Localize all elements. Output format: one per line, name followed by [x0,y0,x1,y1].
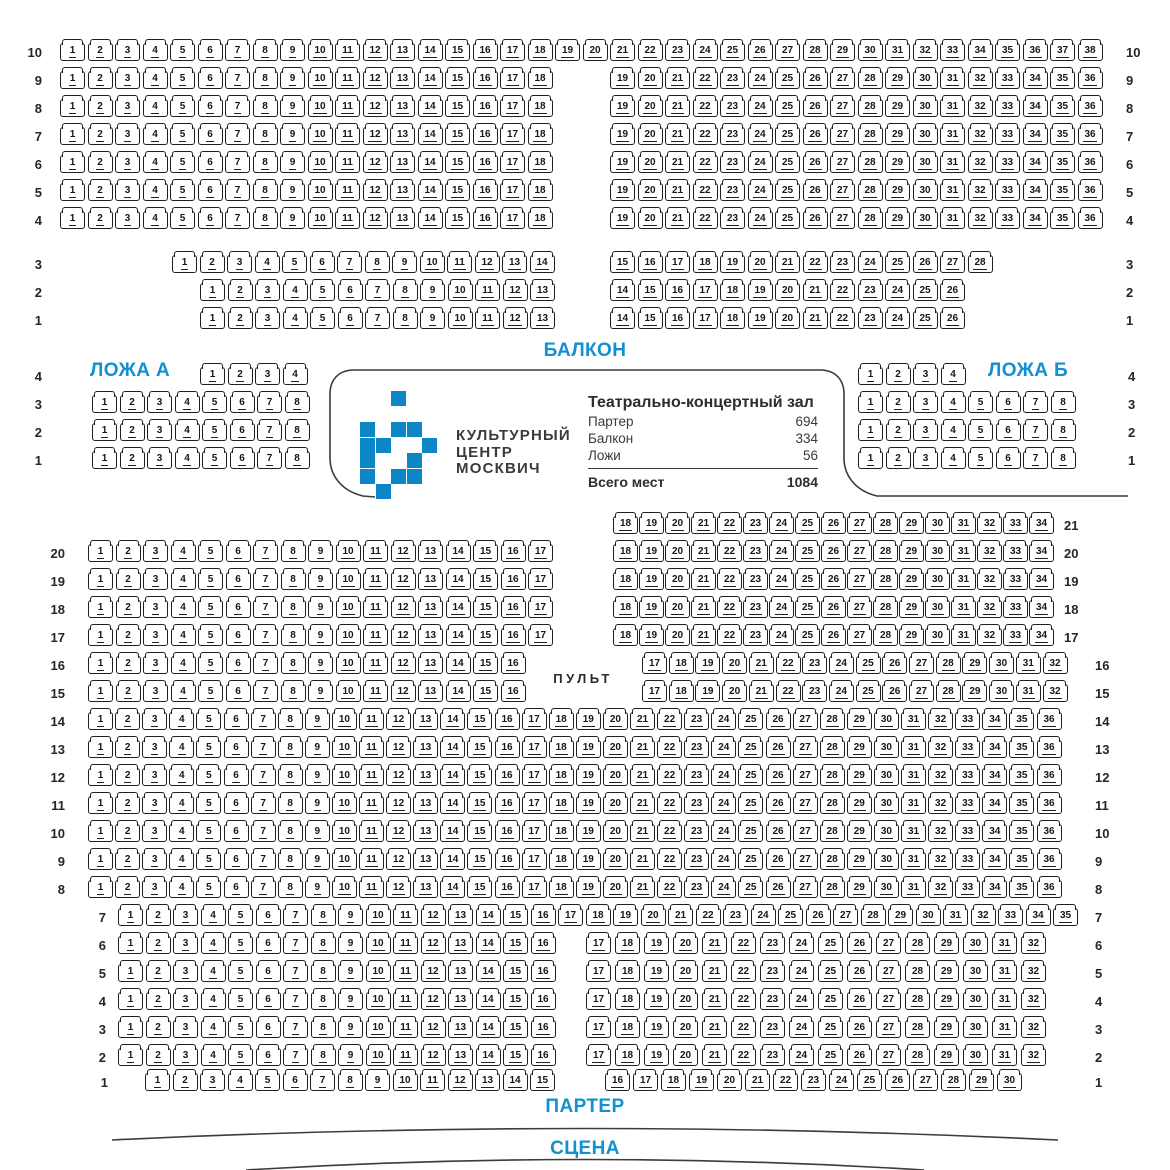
seat[interactable]: 35 [1009,824,1034,842]
seat[interactable]: 19 [639,572,664,590]
seat[interactable]: 7 [225,127,250,145]
seat[interactable]: 17 [633,1073,658,1091]
seat[interactable]: 13 [448,936,473,954]
seat[interactable]: 28 [858,211,883,229]
seat[interactable]: 7 [253,600,278,618]
seat[interactable]: 32 [977,516,1002,534]
seat[interactable]: 4 [143,71,168,89]
seat[interactable]: 6 [198,183,223,201]
seat[interactable]: 20 [603,796,628,814]
seat[interactable]: 13 [390,71,415,89]
seat[interactable]: 8 [281,656,306,674]
seat[interactable]: 33 [955,824,980,842]
seat[interactable]: 6 [256,1020,281,1038]
seat[interactable]: 1 [88,656,113,674]
seat[interactable]: 7 [253,656,278,674]
seat[interactable]: 34 [982,880,1007,898]
seat[interactable]: 8 [281,628,306,646]
seat[interactable]: 24 [769,544,794,562]
seat[interactable]: 2 [228,283,253,301]
seat[interactable]: 9 [392,255,417,273]
seat[interactable]: 1 [172,255,197,273]
seat[interactable]: 25 [856,684,881,702]
seat[interactable]: 9 [305,852,330,870]
seat[interactable]: 9 [280,127,305,145]
seat[interactable]: 13 [390,43,415,61]
seat[interactable]: 19 [576,740,601,758]
seat[interactable]: 27 [847,544,872,562]
seat[interactable]: 22 [830,311,855,329]
seat[interactable]: 26 [803,211,828,229]
seat[interactable]: 23 [801,1073,826,1091]
seat[interactable]: 21 [665,183,690,201]
seat[interactable]: 1 [858,423,883,441]
seat[interactable]: 20 [638,183,663,201]
seat[interactable]: 18 [693,255,718,273]
seat[interactable]: 28 [873,544,898,562]
seat[interactable]: 23 [720,127,745,145]
seat[interactable]: 7 [253,544,278,562]
seat[interactable]: 7 [251,796,276,814]
seat[interactable]: 3 [255,311,280,329]
seat[interactable]: 14 [440,712,465,730]
seat[interactable]: 3 [142,796,167,814]
seat[interactable]: 7 [251,852,276,870]
seat[interactable]: 17 [500,71,525,89]
seat[interactable]: 7 [310,1073,335,1091]
seat[interactable]: 2 [228,311,253,329]
seat[interactable]: 26 [748,43,773,61]
seat[interactable]: 11 [363,572,388,590]
seat[interactable]: 26 [847,992,872,1010]
seat[interactable]: 9 [280,155,305,173]
seat[interactable]: 14 [476,908,501,926]
seat[interactable]: 7 [1023,395,1048,413]
seat[interactable]: 19 [689,1073,714,1091]
seat[interactable]: 19 [576,712,601,730]
seat[interactable]: 12 [363,99,388,117]
seat[interactable]: 32 [968,211,993,229]
seat[interactable]: 11 [335,183,360,201]
seat[interactable]: 27 [876,992,901,1010]
seat[interactable]: 20 [638,127,663,145]
seat[interactable]: 21 [702,936,727,954]
seat[interactable]: 27 [793,768,818,786]
seat[interactable]: 36 [1078,99,1103,117]
seat[interactable]: 18 [613,544,638,562]
seat[interactable]: 24 [829,1073,854,1091]
seat[interactable]: 28 [820,768,845,786]
seat[interactable]: 12 [363,155,388,173]
seat[interactable]: 1 [118,1048,143,1066]
seat[interactable]: 23 [743,600,768,618]
seat[interactable]: 2 [146,936,171,954]
seat[interactable]: 5 [196,880,221,898]
seat[interactable]: 5 [202,423,227,441]
seat[interactable]: 31 [901,768,926,786]
seat[interactable]: 26 [821,600,846,618]
seat[interactable]: 17 [586,936,611,954]
seat[interactable]: 27 [847,628,872,646]
seat[interactable]: 3 [147,395,172,413]
seat[interactable]: 8 [311,992,336,1010]
seat[interactable]: 12 [386,740,411,758]
seat[interactable]: 25 [775,99,800,117]
seat[interactable]: 16 [501,684,526,702]
seat[interactable]: 1 [118,964,143,982]
seat[interactable]: 17 [500,183,525,201]
seat[interactable]: 21 [665,71,690,89]
seat[interactable]: 8 [281,684,306,702]
seat[interactable]: 4 [143,155,168,173]
seat[interactable]: 22 [657,880,682,898]
seat[interactable]: 22 [696,908,721,926]
seat[interactable]: 11 [363,600,388,618]
seat[interactable]: 7 [1023,423,1048,441]
seat[interactable]: 32 [968,155,993,173]
seat[interactable]: 6 [198,211,223,229]
seat[interactable]: 15 [473,656,498,674]
seat[interactable]: 7 [283,992,308,1010]
seat[interactable]: 11 [335,211,360,229]
seat[interactable]: 13 [390,211,415,229]
seat[interactable]: 8 [285,451,310,469]
seat[interactable]: 31 [940,155,965,173]
seat[interactable]: 23 [684,852,709,870]
seat[interactable]: 26 [847,1020,872,1038]
seat[interactable]: 18 [528,127,553,145]
seat[interactable]: 1 [60,99,85,117]
seat[interactable]: 6 [338,311,363,329]
seat[interactable]: 25 [738,712,763,730]
seat[interactable]: 32 [1021,1048,1046,1066]
seat[interactable]: 4 [143,127,168,145]
seat[interactable]: 16 [473,155,498,173]
seat[interactable]: 28 [858,183,883,201]
seat[interactable]: 24 [748,99,773,117]
seat[interactable]: 23 [760,1020,785,1038]
seat[interactable]: 18 [613,628,638,646]
seat[interactable]: 23 [684,880,709,898]
seat[interactable]: 30 [874,796,899,814]
seat[interactable]: 22 [693,183,718,201]
seat[interactable]: 4 [169,712,194,730]
seat[interactable]: 7 [251,880,276,898]
seat[interactable]: 29 [830,43,855,61]
seat[interactable]: 27 [830,183,855,201]
seat[interactable]: 4 [169,796,194,814]
seat[interactable]: 9 [308,628,333,646]
seat[interactable]: 19 [610,71,635,89]
seat[interactable]: 24 [711,768,736,786]
seat[interactable]: 23 [720,183,745,201]
seat[interactable]: 12 [448,1073,473,1091]
seat[interactable]: 17 [500,155,525,173]
seat[interactable]: 25 [775,155,800,173]
seat[interactable]: 19 [555,43,580,61]
seat[interactable]: 1 [60,155,85,173]
seat[interactable]: 7 [283,1048,308,1066]
seat[interactable]: 34 [982,740,1007,758]
seat[interactable]: 28 [820,880,845,898]
seat[interactable]: 22 [717,572,742,590]
seat[interactable]: 19 [610,99,635,117]
seat[interactable]: 2 [886,423,911,441]
seat[interactable]: 12 [363,183,388,201]
seat[interactable]: 6 [226,628,251,646]
seat[interactable]: 5 [228,964,253,982]
seat[interactable]: 1 [88,852,113,870]
seat[interactable]: 14 [476,1020,501,1038]
seat[interactable]: 4 [941,395,966,413]
seat[interactable]: 31 [951,600,976,618]
seat[interactable]: 16 [501,656,526,674]
seat[interactable]: 17 [522,712,547,730]
seat[interactable]: 35 [1009,880,1034,898]
seat[interactable]: 2 [120,451,145,469]
seat[interactable]: 12 [386,796,411,814]
seat[interactable]: 12 [421,1020,446,1038]
seat[interactable]: 16 [473,71,498,89]
seat[interactable]: 2 [116,628,141,646]
seat[interactable]: 9 [308,684,333,702]
seat[interactable]: 27 [940,255,965,273]
seat[interactable]: 9 [305,768,330,786]
seat[interactable]: 7 [257,423,282,441]
seat[interactable]: 34 [982,712,1007,730]
seat[interactable]: 5 [170,99,195,117]
seat[interactable]: 26 [803,183,828,201]
seat[interactable]: 31 [901,880,926,898]
seat[interactable]: 14 [418,183,443,201]
seat[interactable]: 8 [285,395,310,413]
seat[interactable]: 22 [773,1073,798,1091]
seat[interactable]: 20 [603,880,628,898]
seat[interactable]: 25 [795,516,820,534]
seat[interactable]: 20 [717,1073,742,1091]
seat[interactable]: 10 [336,572,361,590]
seat[interactable]: 14 [440,740,465,758]
seat[interactable]: 3 [142,880,167,898]
seat[interactable]: 4 [201,908,226,926]
seat[interactable]: 1 [858,395,883,413]
seat[interactable]: 24 [693,43,718,61]
seat[interactable]: 3 [115,127,140,145]
seat[interactable]: 3 [115,211,140,229]
seat[interactable]: 3 [143,600,168,618]
seat[interactable]: 25 [738,768,763,786]
seat[interactable]: 25 [775,183,800,201]
seat[interactable]: 9 [280,43,305,61]
seat[interactable]: 12 [363,71,388,89]
seat[interactable]: 4 [283,311,308,329]
seat[interactable]: 24 [748,71,773,89]
seat[interactable]: 10 [308,71,333,89]
seat[interactable]: 22 [731,992,756,1010]
seat[interactable]: 14 [418,71,443,89]
seat[interactable]: 3 [173,1048,198,1066]
seat[interactable]: 31 [943,908,968,926]
seat[interactable]: 16 [473,43,498,61]
seat[interactable]: 24 [769,600,794,618]
seat[interactable]: 21 [691,600,716,618]
seat[interactable]: 19 [695,656,720,674]
seat[interactable]: 2 [88,183,113,201]
seat[interactable]: 5 [198,600,223,618]
seat[interactable]: 5 [198,628,223,646]
seat[interactable]: 7 [251,740,276,758]
seat[interactable]: 8 [393,311,418,329]
seat[interactable]: 9 [338,1048,363,1066]
seat[interactable]: 30 [913,155,938,173]
seat[interactable]: 8 [253,71,278,89]
seat[interactable]: 27 [833,908,858,926]
seat[interactable]: 27 [830,211,855,229]
seat[interactable]: 16 [665,283,690,301]
seat[interactable]: 16 [501,628,526,646]
seat[interactable]: 31 [1016,684,1041,702]
seat[interactable]: 1 [92,395,117,413]
seat[interactable]: 27 [909,656,934,674]
seat[interactable]: 9 [305,712,330,730]
seat[interactable]: 13 [502,255,527,273]
seat[interactable]: 1 [118,908,143,926]
seat[interactable]: 32 [968,183,993,201]
seat[interactable]: 13 [448,1020,473,1038]
seat[interactable]: 23 [858,311,883,329]
seat[interactable]: 19 [644,1048,669,1066]
seat[interactable]: 10 [366,1020,391,1038]
seat[interactable]: 32 [928,880,953,898]
seat[interactable]: 34 [1029,572,1054,590]
seat[interactable]: 29 [934,992,959,1010]
seat[interactable]: 31 [901,852,926,870]
seat[interactable]: 23 [743,572,768,590]
seat[interactable]: 4 [283,367,308,385]
seat[interactable]: 29 [847,880,872,898]
seat[interactable]: 15 [530,1073,555,1091]
seat[interactable]: 4 [201,936,226,954]
seat[interactable]: 30 [913,127,938,145]
seat[interactable]: 26 [940,311,965,329]
seat[interactable]: 17 [642,656,667,674]
seat[interactable]: 20 [673,1048,698,1066]
seat[interactable]: 31 [901,740,926,758]
seat[interactable]: 3 [142,740,167,758]
seat[interactable]: 5 [196,824,221,842]
seat[interactable]: 15 [503,908,528,926]
seat[interactable]: 4 [169,740,194,758]
seat[interactable]: 22 [657,768,682,786]
seat[interactable]: 1 [200,311,225,329]
seat[interactable]: 17 [558,908,583,926]
seat[interactable]: 20 [673,1020,698,1038]
seat[interactable]: 7 [283,964,308,982]
seat[interactable]: 24 [711,740,736,758]
seat[interactable]: 27 [793,852,818,870]
seat[interactable]: 30 [874,740,899,758]
seat[interactable]: 12 [386,712,411,730]
seat[interactable]: 31 [951,572,976,590]
seat[interactable]: 16 [501,572,526,590]
seat[interactable]: 18 [615,992,640,1010]
seat[interactable]: 18 [613,572,638,590]
seat[interactable]: 9 [305,824,330,842]
seat[interactable]: 6 [224,852,249,870]
seat[interactable]: 24 [769,516,794,534]
seat[interactable]: 30 [963,992,988,1010]
seat[interactable]: 19 [576,768,601,786]
seat[interactable]: 13 [413,880,438,898]
seat[interactable]: 25 [856,656,881,674]
seat[interactable]: 21 [610,43,635,61]
seat[interactable]: 25 [778,908,803,926]
seat[interactable]: 29 [847,852,872,870]
seat[interactable]: 5 [310,283,335,301]
seat[interactable]: 36 [1037,740,1062,758]
seat[interactable]: 7 [337,255,362,273]
seat[interactable]: 13 [413,768,438,786]
seat[interactable]: 13 [448,908,473,926]
seat[interactable]: 25 [913,311,938,329]
seat[interactable]: 16 [473,183,498,201]
seat[interactable]: 18 [528,99,553,117]
seat[interactable]: 19 [639,516,664,534]
seat[interactable]: 8 [1051,423,1076,441]
seat[interactable]: 8 [365,255,390,273]
seat[interactable]: 5 [228,908,253,926]
seat[interactable]: 5 [170,71,195,89]
seat[interactable]: 4 [171,684,196,702]
seat[interactable]: 24 [829,656,854,674]
seat[interactable]: 19 [720,255,745,273]
seat[interactable]: 14 [476,1048,501,1066]
seat[interactable]: 11 [363,656,388,674]
seat[interactable]: 13 [413,796,438,814]
seat[interactable]: 34 [1023,127,1048,145]
seat[interactable]: 4 [201,964,226,982]
seat[interactable]: 12 [421,964,446,982]
seat[interactable]: 8 [278,852,303,870]
seat[interactable]: 28 [820,796,845,814]
seat[interactable]: 26 [847,936,872,954]
seat[interactable]: 23 [760,992,785,1010]
seat[interactable]: 29 [899,628,924,646]
seat[interactable]: 25 [885,255,910,273]
seat[interactable]: 5 [198,684,223,702]
seat[interactable]: 1 [118,992,143,1010]
seat[interactable]: 35 [1050,127,1075,145]
seat[interactable]: 6 [996,423,1021,441]
seat[interactable]: 26 [766,880,791,898]
seat[interactable]: 33 [995,99,1020,117]
seat[interactable]: 21 [630,796,655,814]
seat[interactable]: 6 [256,992,281,1010]
seat[interactable]: 6 [256,908,281,926]
seat[interactable]: 5 [196,712,221,730]
seat[interactable]: 31 [901,712,926,730]
seat[interactable]: 8 [281,544,306,562]
seat[interactable]: 29 [847,824,872,842]
seat[interactable]: 23 [720,155,745,173]
seat[interactable]: 15 [473,684,498,702]
seat[interactable]: 35 [1009,712,1034,730]
seat[interactable]: 26 [940,283,965,301]
seat[interactable]: 15 [445,211,470,229]
seat[interactable]: 23 [858,283,883,301]
seat[interactable]: 27 [876,964,901,982]
seat[interactable]: 21 [665,127,690,145]
